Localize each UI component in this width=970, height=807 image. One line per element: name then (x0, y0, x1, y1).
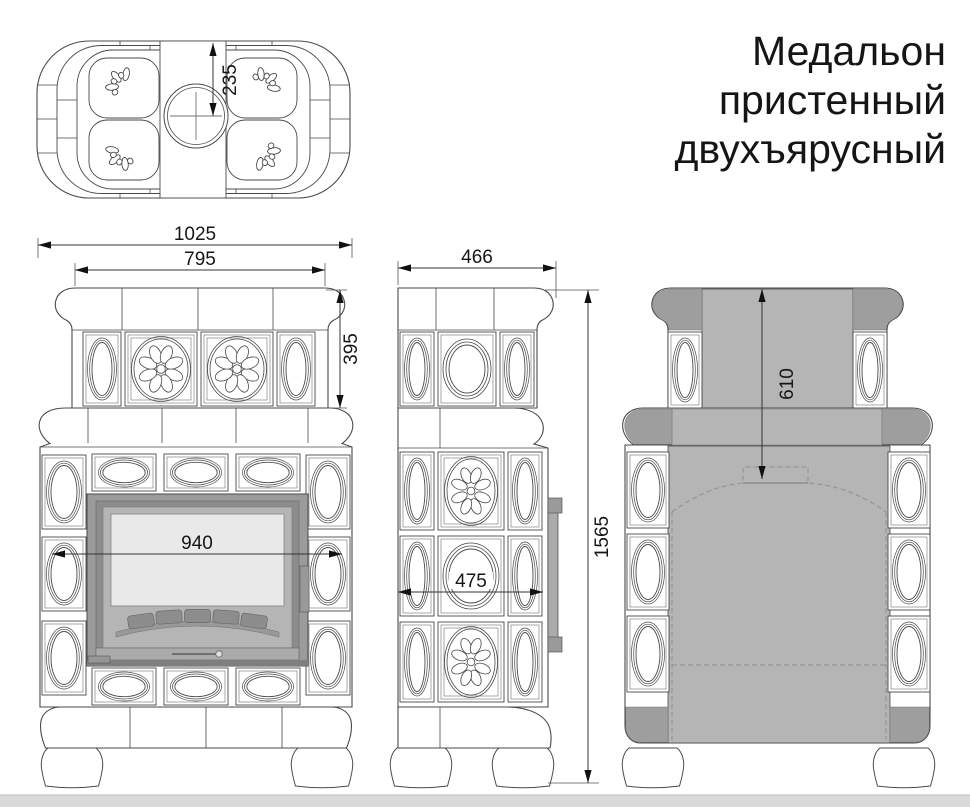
rear-upper-corner-left (653, 289, 702, 330)
rosette-center (157, 365, 166, 374)
door-hinge-bar (300, 566, 309, 612)
dim-chimney-offset: 235 (220, 64, 241, 96)
dim-upper-tier-height: 395 (341, 333, 362, 365)
rosette-center (233, 365, 242, 374)
oval-tile (400, 452, 434, 530)
rear-base-corner-right (890, 707, 929, 742)
oval-tile (508, 622, 542, 702)
foot (492, 748, 553, 788)
rear-main-gray-panel (668, 446, 890, 743)
dim-body-width-firebox: 940 (181, 533, 213, 554)
rear-base-corner-left (626, 707, 668, 742)
quadrant-tile (227, 120, 297, 180)
oval-tile (400, 536, 434, 616)
oval-tile (508, 536, 542, 616)
front-plinth (41, 707, 352, 748)
dimension-arrowhead (312, 266, 325, 273)
ash-tab (88, 656, 110, 663)
foot (390, 748, 451, 788)
oval-tile-horizontal (236, 668, 300, 705)
door-protrusion-top-tab (548, 498, 562, 513)
dim-rear-upper-height: 610 (777, 368, 798, 400)
stove-feet (41, 748, 934, 788)
vent-segment (213, 610, 240, 625)
oval-tile (277, 332, 315, 406)
stove-orthographic-drawing: 235 1025 795 395 940 466 1565 475 610 (0, 0, 970, 807)
oval-tile (668, 332, 702, 408)
quadrant-tile (89, 58, 159, 118)
rear-band-corner-left (625, 409, 672, 444)
foot (873, 748, 934, 788)
oval-tile-horizontal (164, 668, 228, 705)
dimension-arrowhead (543, 264, 556, 271)
rosette-center (467, 487, 475, 495)
oval-tile-horizontal (164, 454, 228, 491)
quadrant-tile (89, 120, 159, 180)
oval-tile (627, 452, 669, 528)
dimension-arrowhead (75, 266, 88, 273)
dim-upper-tier-width: 795 (184, 249, 216, 270)
dimension-arrowhead (398, 264, 411, 271)
oval-tile-horizontal (92, 454, 156, 491)
rear-band-gray-panel (672, 409, 882, 445)
oval-tile (888, 534, 930, 610)
oval-tile (508, 452, 542, 530)
door-protrusion-bar (548, 500, 558, 650)
oval-tile (400, 332, 434, 406)
front-view (39, 288, 353, 748)
oval-tile (888, 616, 930, 692)
oval-tile (627, 616, 669, 692)
vent-segment (185, 610, 211, 623)
dimension-arrowhead (339, 241, 352, 248)
door-glass (111, 514, 284, 606)
side-plinth (398, 707, 551, 748)
dimension-arrowhead (336, 395, 343, 408)
rear-upper-corner-right (853, 289, 902, 330)
oval-tile (400, 622, 434, 702)
technical-drawing-page: Медальон пристенный двухъярусный (0, 0, 970, 807)
dim-overall-width: 1025 (174, 224, 216, 245)
bottom-surface-strip (0, 795, 970, 807)
door-protrusion-bottom-tab (548, 637, 562, 652)
oval-tile (853, 332, 887, 408)
dim-body-depth: 475 (455, 571, 487, 592)
rear-band-corner-right (882, 409, 930, 444)
door-bottom-edge (87, 660, 308, 666)
dim-overall-height: 1565 (592, 516, 613, 558)
oval-tile (500, 332, 534, 406)
rear-view (623, 288, 933, 743)
rosette-center (467, 658, 475, 666)
side-view (398, 288, 562, 748)
dim-depth: 466 (461, 247, 493, 268)
door-protrusion (548, 498, 562, 652)
door-handle-knob (216, 651, 222, 657)
vent-segment (156, 610, 183, 625)
foot (622, 748, 683, 788)
oval-tile-horizontal (92, 668, 156, 705)
side-tiles (400, 332, 542, 702)
foot (291, 748, 352, 788)
firebox-door (87, 494, 309, 666)
dimension-arrowhead (584, 770, 591, 783)
large-oval-tile (438, 332, 496, 406)
oval-tile (627, 534, 669, 610)
oval-tile-horizontal (236, 454, 300, 491)
top-view-plan (37, 41, 350, 198)
oval-tile (888, 452, 930, 528)
oval-tile (83, 332, 121, 406)
dimension-arrowhead (584, 290, 591, 303)
dimension-arrowhead (38, 241, 51, 248)
foot (41, 748, 102, 788)
